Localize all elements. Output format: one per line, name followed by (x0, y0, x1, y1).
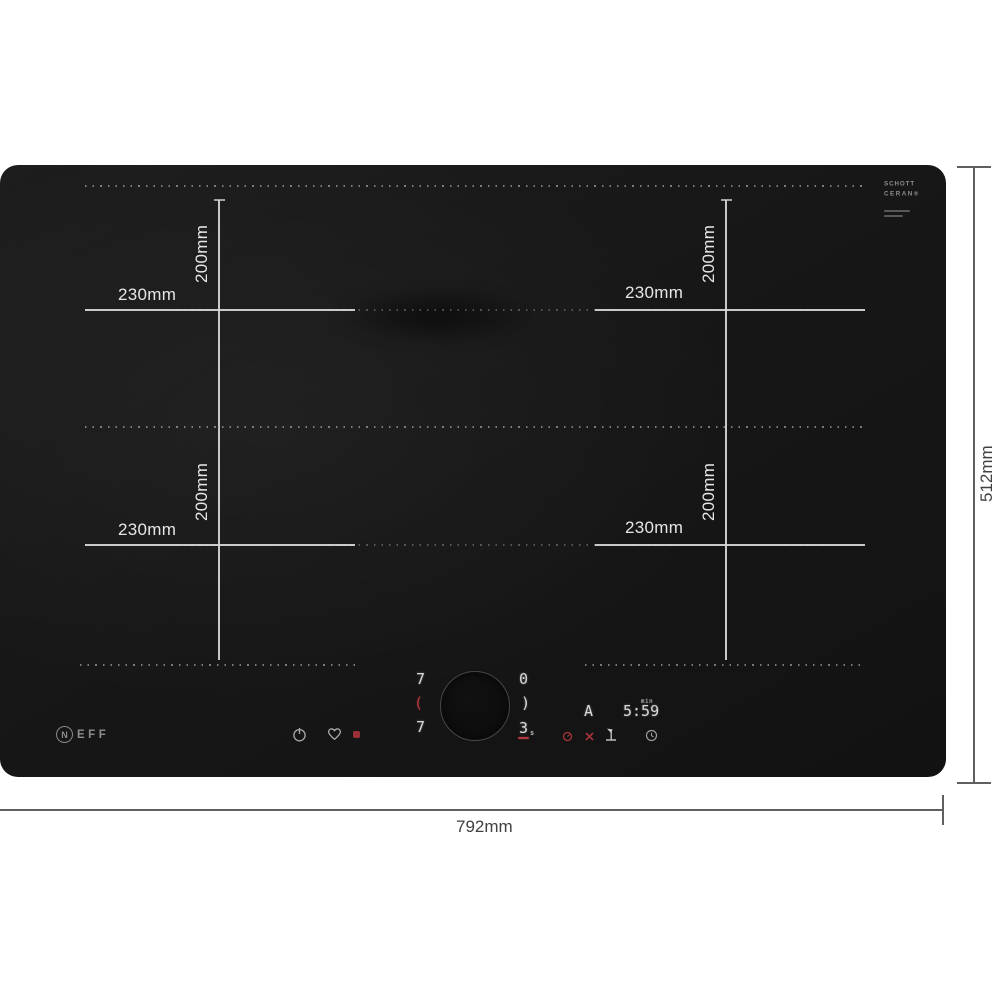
product-image: 230mm 200mm 230mm 200mm 230mm 200mm 230m… (0, 0, 1000, 1000)
measure-line-width-top-right (595, 309, 865, 311)
overall-width-label: 792mm (456, 817, 513, 837)
schott-ceran-logo: SCHOTT CERAN® (884, 181, 942, 217)
schott-smalltext-bar (884, 210, 910, 212)
glass-reflection (330, 286, 545, 346)
neff-logo-ring: N (56, 726, 73, 743)
measure-line-width-top-left (85, 309, 355, 311)
zone-dotted-line-bottom-right (585, 664, 865, 666)
left-zone-select-mark: ( (414, 696, 423, 711)
schott-smalltext-bar (884, 215, 903, 217)
zone-dotted-line-top (85, 185, 868, 187)
zone-depth-label-top-right: 200mm (699, 218, 719, 290)
measure-line-depth-left (218, 200, 220, 660)
zone-depth-label-top-left: 200mm (192, 218, 212, 290)
twistpad-dial (440, 671, 510, 741)
heart-icon (327, 727, 342, 741)
dimension-tick-right (942, 795, 944, 825)
right-zone-red-underline (518, 737, 529, 739)
dimension-line-width (0, 809, 944, 811)
neff-logo: N EFF (56, 726, 109, 743)
left-zone-bottom-level: 7 (416, 720, 425, 735)
dimension-tick-bottom (957, 782, 991, 784)
dimension-tick-top (957, 166, 991, 168)
red-dot-icon (352, 730, 361, 739)
red-cross-icon (584, 731, 595, 742)
left-zone-top-level: 7 (416, 672, 425, 687)
zone-depth-label-bottom-right: 200mm (699, 456, 719, 528)
neff-logo-initial: N (61, 730, 68, 740)
measure-line-width-bottom-left (85, 544, 355, 546)
zone-dotted-line-middle (85, 426, 868, 428)
zone-width-label-top-left: 230mm (118, 285, 176, 305)
schott-ceran-line2: CERAN® (884, 191, 920, 197)
measure-line-width-bottom-right (595, 544, 865, 546)
neff-logo-text: EFF (77, 729, 109, 741)
overall-depth-label: 512mm (977, 438, 997, 510)
zone-width-label-bottom-left: 230mm (118, 520, 176, 540)
right-zone-bottom-level: 3 (519, 721, 528, 736)
zone-dotted-line-bottom-left (80, 664, 357, 666)
measure-line-depth-right (725, 200, 727, 660)
right-zone-bottom-sub: s (530, 728, 534, 739)
auto-indicator: A (584, 704, 593, 719)
dimension-line-depth (973, 167, 975, 784)
flag-icon (604, 726, 618, 742)
zone-width-label-bottom-right: 230mm (625, 518, 683, 538)
timer-display: 5:59 (623, 704, 659, 719)
zone-width-label-top-right: 230mm (625, 283, 683, 303)
schott-ceran-line1: SCHOTT (884, 181, 920, 187)
zone-depth-label-bottom-left: 200mm (192, 456, 212, 528)
power-icon (291, 726, 308, 743)
measure-tick (721, 199, 732, 201)
measure-tick (214, 199, 225, 201)
right-zone-top-level: 0 (519, 672, 528, 687)
clock-icon (645, 729, 658, 742)
right-zone-select-mark: ) (521, 696, 530, 711)
red-gauge-icon (562, 731, 573, 742)
